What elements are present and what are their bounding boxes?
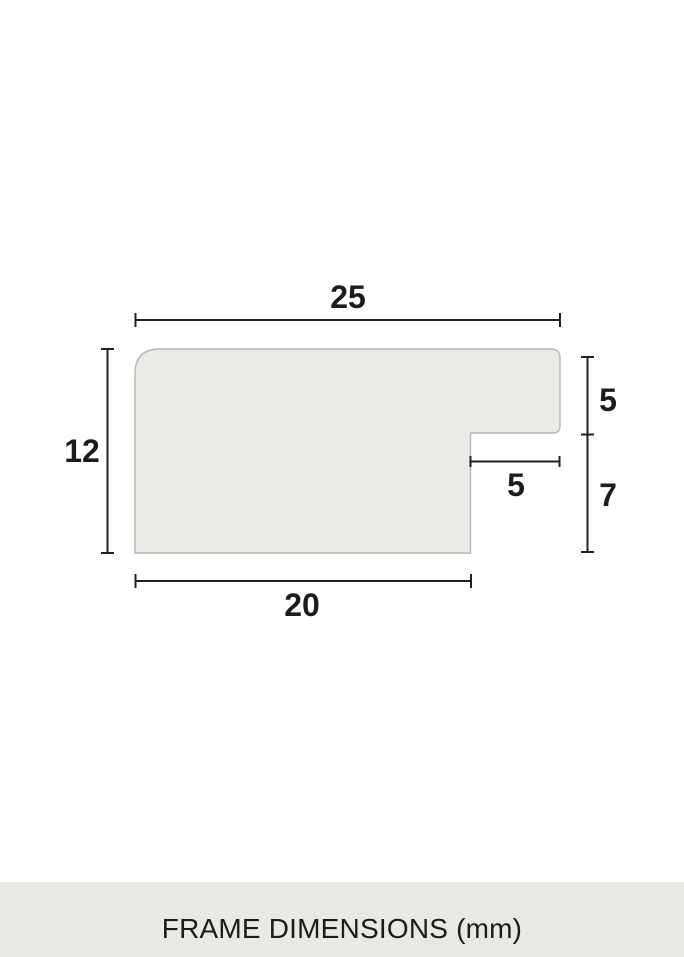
svg-text:5: 5 [599,382,617,418]
svg-text:5: 5 [507,467,525,503]
svg-text:12: 12 [64,433,100,469]
svg-text:20: 20 [284,587,320,623]
svg-text:25: 25 [330,279,366,315]
svg-text:7: 7 [599,477,617,513]
